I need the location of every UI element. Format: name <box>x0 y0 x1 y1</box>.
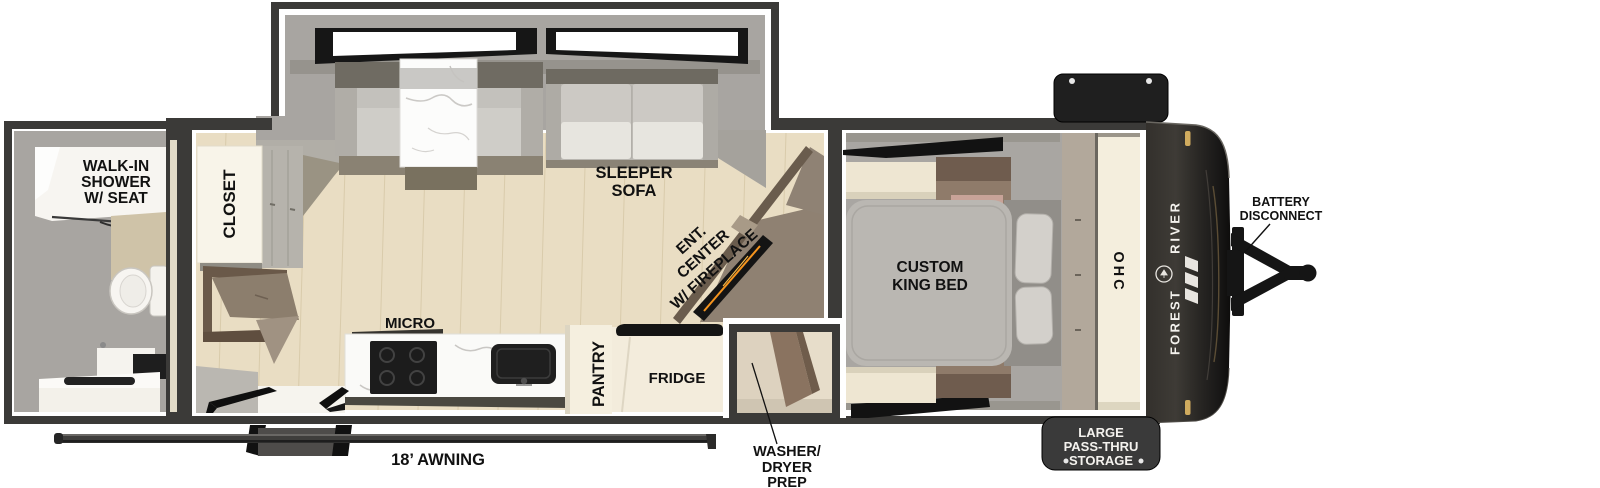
svg-text:PREP: PREP <box>767 475 807 488</box>
svg-text:STORAGE: STORAGE <box>1069 453 1133 468</box>
svg-text:SHOWER: SHOWER <box>81 174 151 191</box>
svg-text:MICRO: MICRO <box>385 315 435 332</box>
svg-text:FOREST: FOREST <box>1168 289 1183 355</box>
svg-text:WALK-IN: WALK-IN <box>83 158 149 175</box>
svg-text:DISCONNECT: DISCONNECT <box>1240 209 1323 223</box>
svg-text:CUSTOM: CUSTOM <box>897 259 964 276</box>
svg-text:WASHER/: WASHER/ <box>753 444 821 460</box>
svg-text:DRYER: DRYER <box>762 460 813 476</box>
svg-text:PANTRY: PANTRY <box>590 341 608 407</box>
svg-text:BATTERY: BATTERY <box>1252 195 1310 209</box>
svg-text:CLOSET: CLOSET <box>220 169 239 239</box>
svg-text:18’ AWNING: 18’ AWNING <box>391 451 485 469</box>
svg-text:FRIDGE: FRIDGE <box>649 370 706 387</box>
svg-text:PASS-THRU: PASS-THRU <box>1064 439 1139 454</box>
svg-text:LARGE: LARGE <box>1078 425 1124 440</box>
svg-text:OHC: OHC <box>1110 251 1126 292</box>
svg-text:SOFA: SOFA <box>612 182 657 200</box>
svg-text:W/ SEAT: W/ SEAT <box>84 190 148 207</box>
svg-text:SLEEPER: SLEEPER <box>595 164 672 182</box>
svg-text:KING BED: KING BED <box>892 277 968 294</box>
svg-text:RIVER: RIVER <box>1168 200 1183 254</box>
